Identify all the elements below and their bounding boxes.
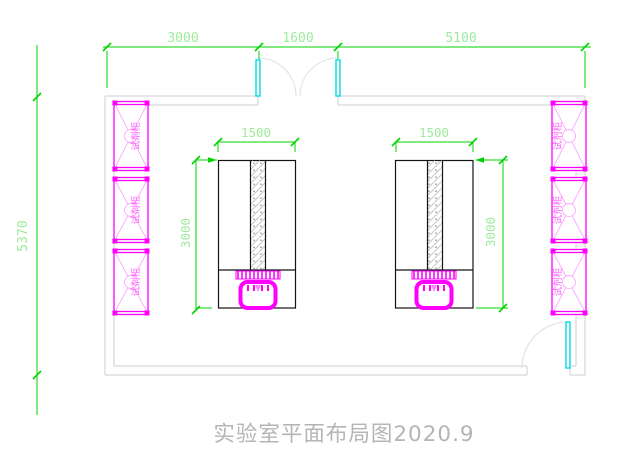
- room-walls: [105, 96, 585, 375]
- cabinet-column-right: 试剂柜 试剂柜 试剂柜: [551, 101, 588, 316]
- cabinet-label: 试剂柜: [130, 195, 142, 224]
- cabinet-label: 试剂柜: [130, 121, 142, 150]
- cabinet-label: 试剂柜: [130, 267, 142, 296]
- dim-bench-depth-left: 3000: [178, 218, 193, 248]
- cabinet-label: 试剂柜: [552, 195, 564, 224]
- lab-bench-left: [219, 161, 296, 309]
- sink-symbol: [236, 271, 280, 308]
- drawing-title: 实验室平面布局图2020.9: [213, 422, 474, 447]
- door-leaf: [566, 322, 570, 368]
- door-leaf-left: [256, 60, 260, 96]
- dim-top-right: 5100: [445, 31, 476, 46]
- single-door-bottom-right: [522, 322, 570, 368]
- cabinet-column-left: 试剂柜 试剂柜 试剂柜: [113, 101, 150, 316]
- dim-bench-width-left: 1500: [241, 125, 271, 140]
- dim-left-overall: 5370: [16, 220, 31, 251]
- floor-plan-drawing: 试剂柜 试剂柜 试剂柜 试剂柜 试剂柜 试剂柜: [0, 0, 619, 469]
- bench-hatch-strip: [251, 161, 266, 271]
- lab-bench-right: [396, 161, 474, 309]
- dim-bench-width-right: 1500: [419, 125, 449, 140]
- bench-hatch-strip: [428, 161, 443, 271]
- dim-top-middle: 1600: [282, 31, 313, 46]
- cabinet-label: 试剂柜: [552, 267, 564, 296]
- cabinet-label: 试剂柜: [552, 121, 564, 150]
- door-leaf-right: [336, 60, 340, 96]
- double-door-top: [256, 58, 340, 96]
- dim-top-left: 3000: [167, 31, 198, 46]
- cad-floor-plan-canvas: 试剂柜 试剂柜 试剂柜 试剂柜 试剂柜 试剂柜: [0, 0, 619, 469]
- sink-symbol: [412, 271, 456, 308]
- dim-bench-depth-right: 3000: [483, 217, 498, 247]
